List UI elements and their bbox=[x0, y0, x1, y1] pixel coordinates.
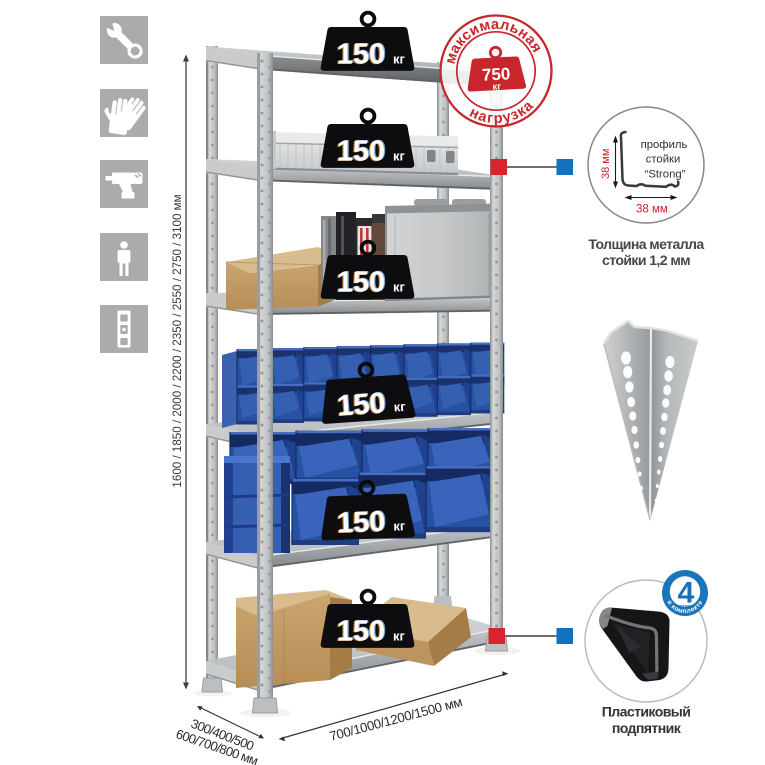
svg-text:кг: кг bbox=[393, 399, 407, 415]
svg-text:Пластиковый: Пластиковый bbox=[602, 704, 691, 720]
svg-text:38 мм: 38 мм bbox=[600, 149, 612, 179]
svg-text:стойки: стойки bbox=[646, 154, 681, 166]
svg-text:150: 150 bbox=[337, 136, 385, 168]
svg-text:1600 / 1850 / 2000 / 2200 / 23: 1600 / 1850 / 2000 / 2200 / 2350 / 2550 … bbox=[171, 194, 184, 487]
svg-text:кг: кг bbox=[393, 149, 406, 164]
svg-text:стойки 1,2 мм: стойки 1,2 мм bbox=[602, 252, 690, 268]
svg-text:кг: кг bbox=[492, 81, 501, 92]
svg-text:150: 150 bbox=[337, 39, 385, 71]
svg-text:“Strong”: “Strong” bbox=[645, 169, 686, 181]
svg-text:кг: кг bbox=[393, 518, 406, 533]
svg-text:38 мм.: 38 мм. bbox=[636, 204, 670, 216]
svg-text:профиль: профиль bbox=[641, 139, 688, 151]
svg-text:150: 150 bbox=[336, 387, 387, 422]
svg-text:подпятник: подпятник bbox=[612, 720, 682, 736]
svg-text:150: 150 bbox=[336, 506, 385, 540]
svg-text:кг: кг bbox=[393, 280, 406, 295]
svg-text:кг: кг bbox=[393, 629, 406, 644]
svg-text:кг: кг bbox=[393, 52, 406, 67]
svg-text:150: 150 bbox=[337, 267, 385, 299]
svg-text:Толщина металла: Толщина металла bbox=[588, 236, 704, 252]
svg-text:150: 150 bbox=[337, 616, 385, 648]
